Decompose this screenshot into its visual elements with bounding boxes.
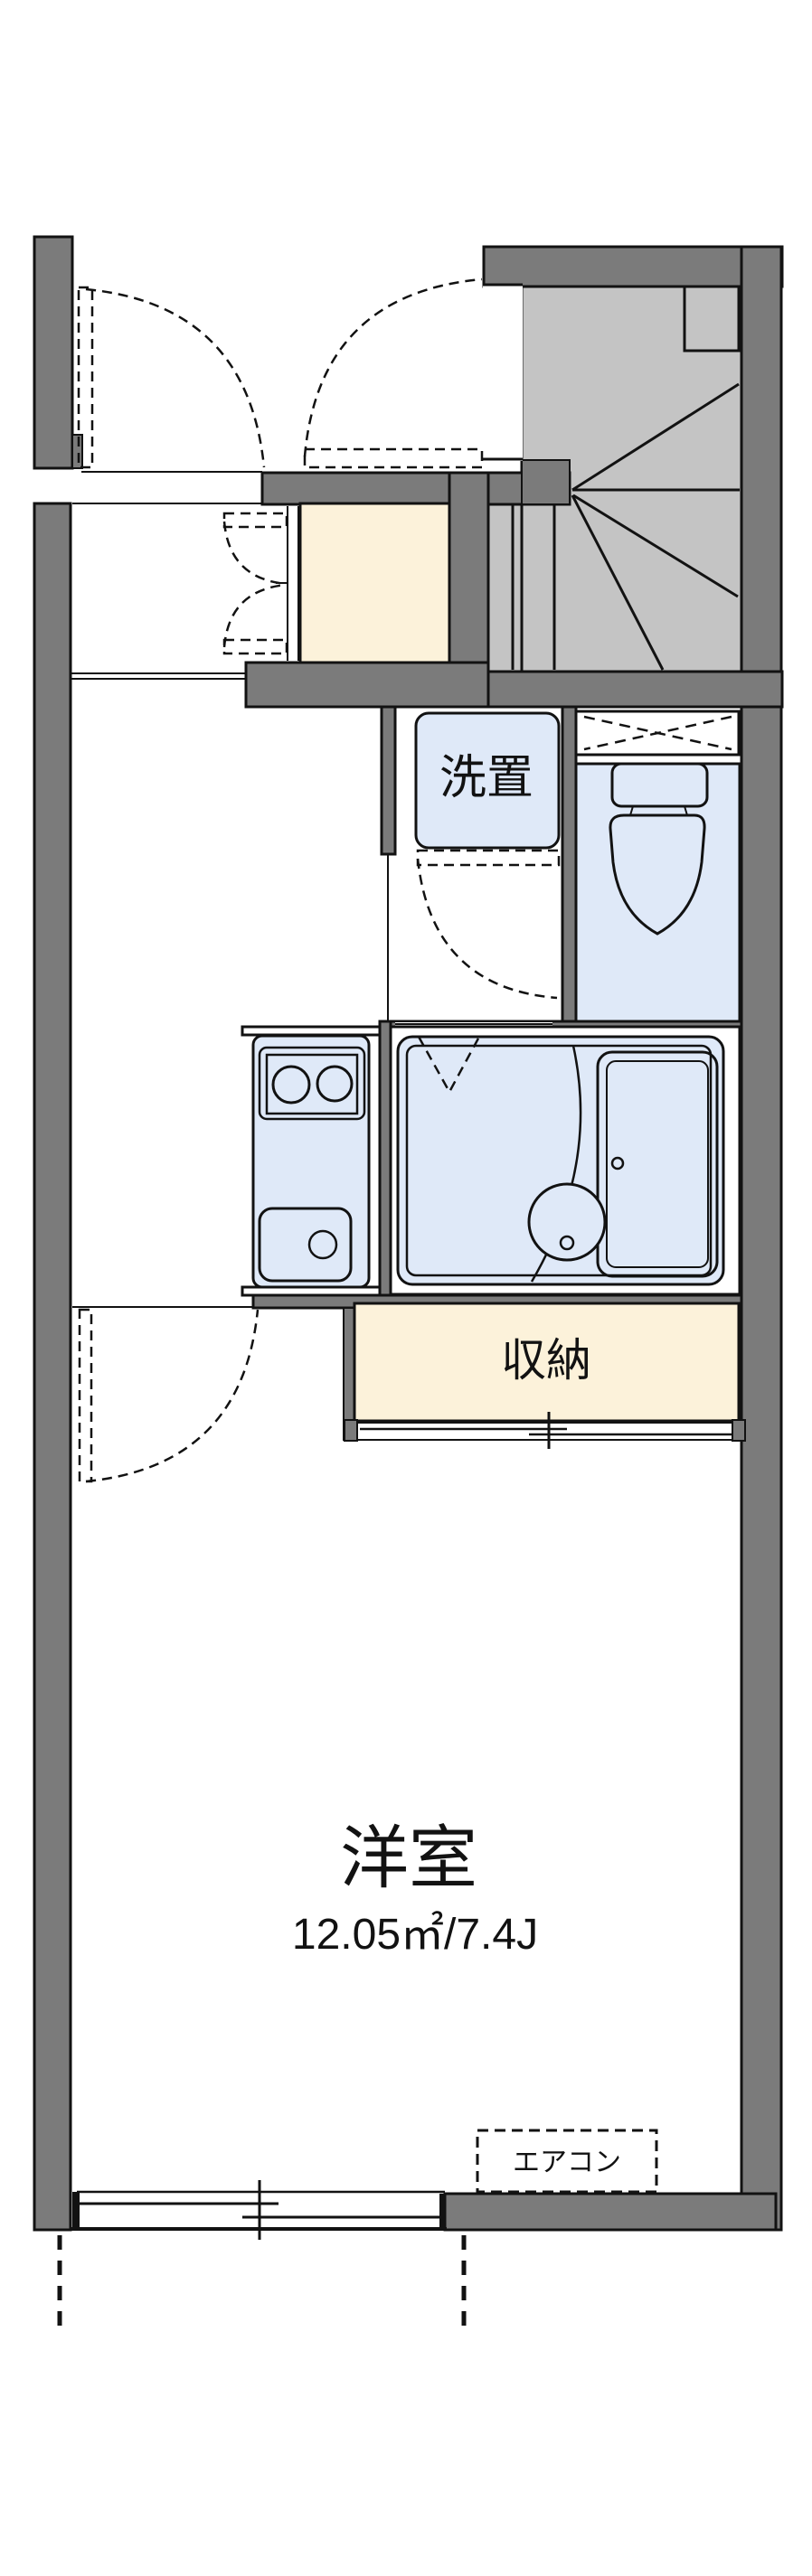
wall-closet-right — [449, 473, 488, 663]
toilet-room — [576, 764, 740, 1021]
track-end-cap — [732, 1420, 745, 1441]
wall-bottom — [445, 2194, 776, 2230]
bath-stool-icon — [529, 1184, 605, 1260]
kitchen — [242, 1027, 380, 1295]
wall-stair-top — [484, 247, 782, 287]
main-room-label: 洋室 — [340, 1820, 477, 1897]
window-sliding — [71, 2180, 447, 2240]
closet-door-swing-arc — [224, 522, 287, 584]
porch-door-swing-arc — [86, 289, 264, 467]
storage-label: 収納 — [501, 1335, 591, 1386]
laundry-door-leaf — [418, 851, 559, 865]
laundry-label: 洗置 — [439, 752, 533, 804]
window-jamb — [72, 2192, 80, 2231]
entry-door-swing-arc — [305, 279, 482, 456]
counter-cap-top — [242, 1027, 380, 1035]
upper-cabinet — [576, 711, 739, 755]
wall-under-closet — [246, 663, 488, 707]
closet-door-leaf-top — [224, 513, 287, 527]
toilet-room-floor — [576, 764, 740, 1021]
wall-stair-stub — [522, 460, 570, 504]
window-jamb — [439, 2194, 446, 2230]
floor-plan: 洗置 収納 洋室 12.05㎡/7.4J エアコン — [0, 0, 812, 2576]
stair-doorway — [483, 284, 523, 461]
wall-left-stub — [72, 435, 82, 468]
wall-left-main — [34, 503, 71, 2230]
wall-stair-bottom — [488, 672, 782, 707]
aircon-label: エアコン — [513, 2148, 621, 2177]
stair-landing — [685, 287, 739, 351]
entry-door-leaf — [305, 449, 482, 467]
closet-door-leaf-bottom — [224, 640, 287, 653]
laundry-door-swing-arc — [418, 859, 557, 998]
main-room-area: 12.05㎡/7.4J — [292, 1911, 538, 1959]
wall-toilet-left — [562, 707, 576, 1021]
main-room-door-swing-arc — [86, 1310, 258, 1481]
floor-plan-drawing: 洗置 収納 洋室 12.05㎡/7.4J エアコン — [0, 0, 812, 2576]
bathroom — [391, 1027, 740, 1294]
main-room-door-leaf — [80, 1310, 91, 1481]
wall-right — [741, 247, 781, 2230]
wall-left-top — [34, 237, 72, 468]
wall-laundry-stub — [382, 707, 395, 854]
wall-bath-left — [380, 1021, 391, 1306]
track-end-cap — [345, 1420, 357, 1441]
boundary-stubs — [60, 2235, 464, 2330]
closet-door-swing-arc — [224, 585, 287, 647]
entrance-closet — [300, 503, 449, 663]
